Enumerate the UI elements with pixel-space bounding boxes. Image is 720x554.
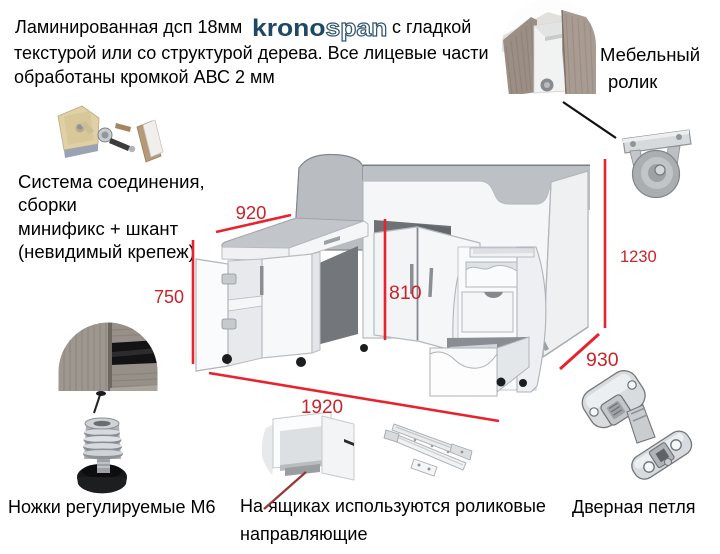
svg-text:1230: 1230 — [620, 248, 657, 266]
svg-text:920: 920 — [236, 202, 267, 223]
svg-text:930: 930 — [586, 349, 619, 371]
svg-text:750: 750 — [154, 287, 184, 307]
svg-text:1920: 1920 — [301, 397, 343, 418]
svg-text:810: 810 — [389, 282, 422, 304]
